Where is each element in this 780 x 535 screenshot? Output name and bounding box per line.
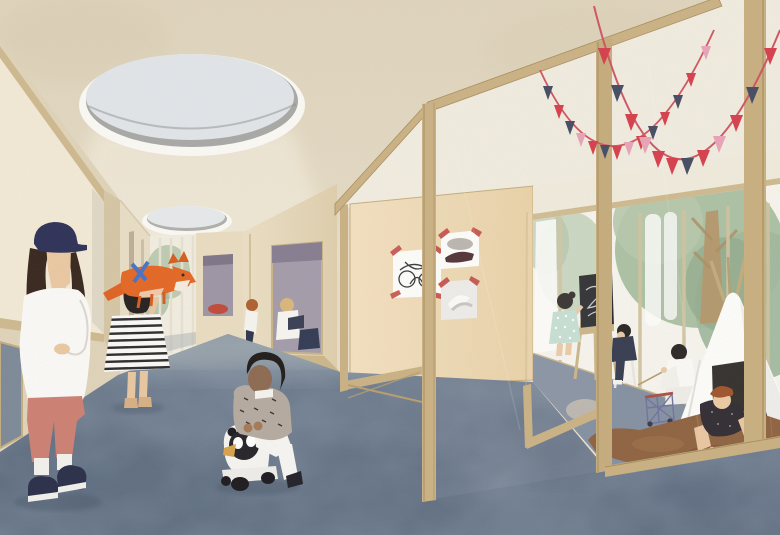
paper-texture-overlay [0, 0, 780, 535]
kindergarten-interior-rendering: Collage-style architectural rendering of… [0, 0, 780, 535]
rendering-canvas: Collage-style architectural rendering of… [0, 0, 780, 535]
